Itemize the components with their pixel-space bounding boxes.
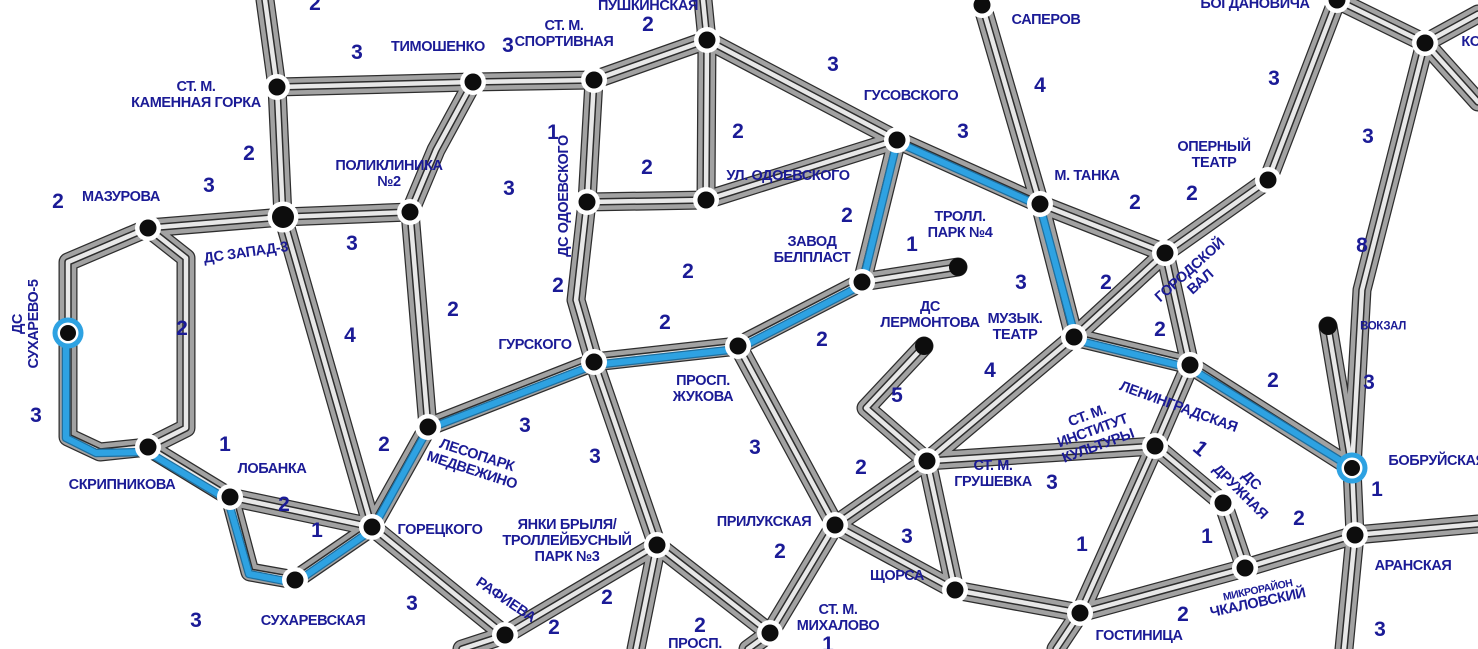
station-dot[interactable] — [1412, 30, 1438, 56]
station-dot[interactable] — [581, 349, 607, 375]
station-dot[interactable] — [268, 202, 299, 233]
station-dot[interactable] — [492, 622, 518, 648]
station-dot[interactable] — [725, 333, 751, 359]
station-dot[interactable] — [135, 215, 161, 241]
station-dot[interactable] — [1232, 555, 1258, 581]
station-dot[interactable] — [644, 532, 670, 558]
station-dot[interactable] — [1067, 600, 1093, 626]
station-dot[interactable] — [822, 512, 848, 538]
station-dot[interactable] — [1255, 167, 1281, 193]
station-dot[interactable] — [1177, 352, 1203, 378]
station-dot[interactable] — [914, 448, 940, 474]
station-dot[interactable] — [1152, 240, 1178, 266]
station-dot[interactable] — [581, 67, 607, 93]
station-dot[interactable] — [1061, 324, 1087, 350]
station-dot[interactable] — [1337, 453, 1368, 484]
station-dot[interactable] — [53, 318, 84, 349]
station-dot[interactable] — [849, 269, 875, 295]
station-dot[interactable] — [757, 620, 783, 646]
station-dot[interactable] — [460, 69, 486, 95]
station-dot[interactable] — [915, 337, 933, 355]
station-dot[interactable] — [264, 74, 290, 100]
station-dot[interactable] — [282, 567, 308, 593]
station-dot[interactable] — [694, 27, 720, 53]
station-dot[interactable] — [415, 414, 441, 440]
station-dot[interactable] — [135, 434, 161, 460]
station-dot[interactable] — [217, 484, 243, 510]
station-dot[interactable] — [942, 577, 968, 603]
station-dot[interactable] — [693, 187, 719, 213]
station-dot[interactable] — [397, 199, 423, 225]
station-dot[interactable] — [1142, 433, 1168, 459]
station-dot[interactable] — [1319, 317, 1337, 335]
station-dot[interactable] — [884, 127, 910, 153]
station-dot[interactable] — [949, 258, 967, 276]
station-dot[interactable] — [1210, 490, 1236, 516]
station-dot[interactable] — [1342, 522, 1368, 548]
station-dot[interactable] — [574, 189, 600, 215]
station-dot[interactable] — [359, 514, 385, 540]
transit-map: СТ. М. КАМЕННАЯ ГОРКАМАЗУРОВАДС ЗАПАД-3П… — [0, 0, 1478, 649]
road-network — [0, 0, 1478, 649]
station-dot[interactable] — [1027, 191, 1053, 217]
